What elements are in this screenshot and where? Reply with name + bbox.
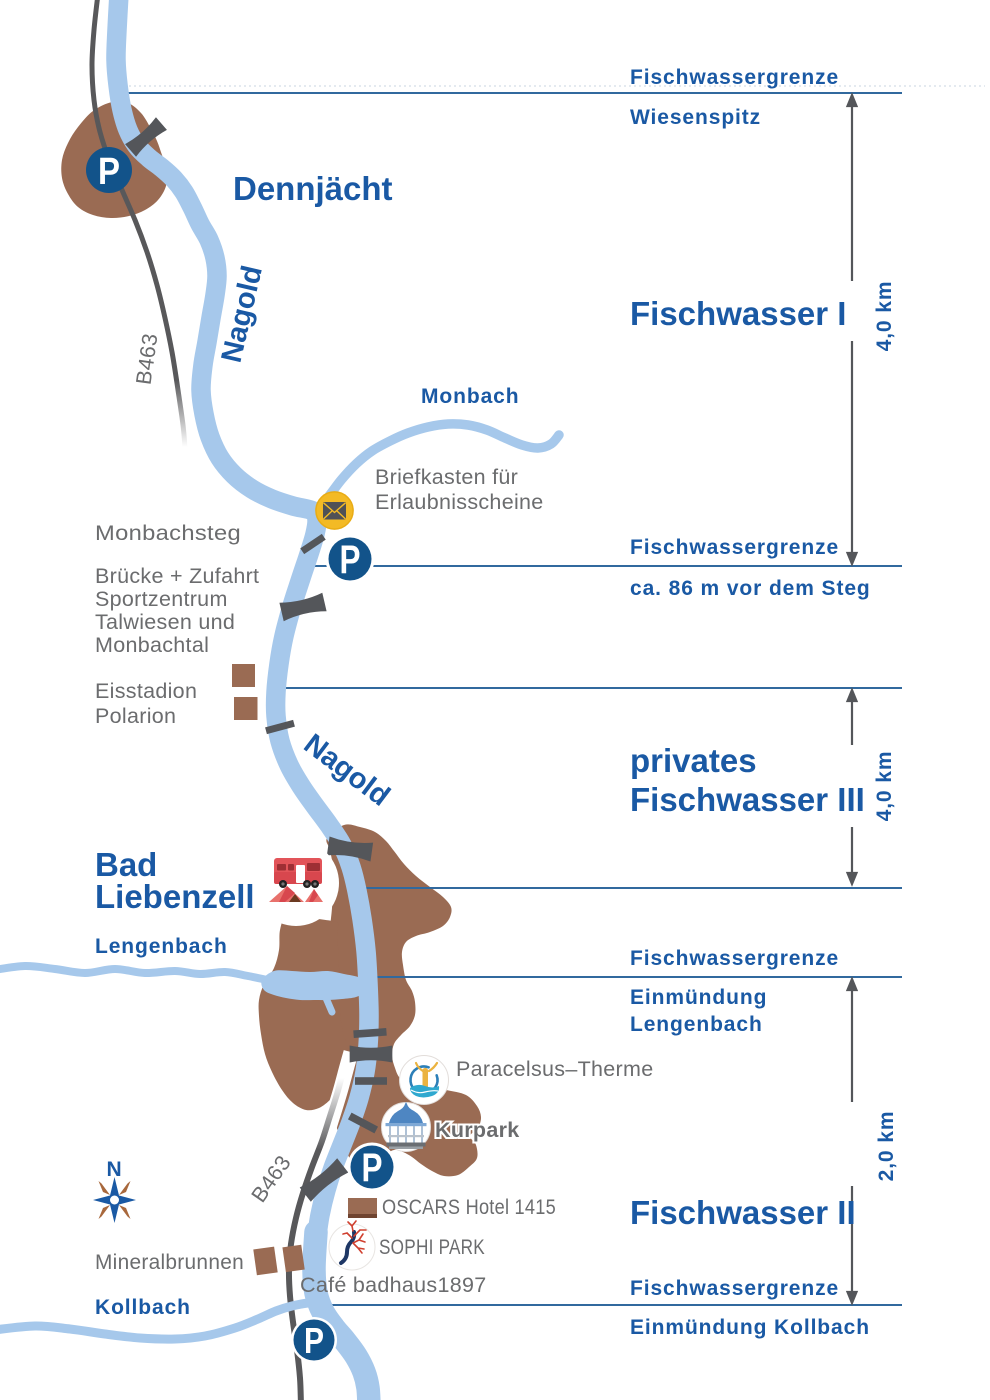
svg-text:Kurpark: Kurpark: [435, 1118, 520, 1142]
svg-text:Lengenbach: Lengenbach: [95, 935, 228, 958]
svg-text:Kollbach: Kollbach: [95, 1296, 191, 1319]
svg-text:Wiesenspitz: Wiesenspitz: [630, 106, 761, 129]
svg-text:Lengenbach: Lengenbach: [630, 1013, 763, 1036]
svg-text:Dennjächt: Dennjächt: [233, 170, 393, 207]
svg-text:Einmündung: Einmündung: [630, 986, 767, 1009]
svg-text:Monbach: Monbach: [421, 385, 519, 408]
svg-text:Café badhaus1897: Café badhaus1897: [300, 1273, 487, 1297]
svg-text:Erlaubnisscheine: Erlaubnisscheine: [375, 490, 544, 514]
svg-text:Monbachtal: Monbachtal: [95, 633, 209, 657]
svg-text:Paracelsus–Therme: Paracelsus–Therme: [456, 1057, 654, 1081]
svg-text:4,0 km: 4,0 km: [873, 281, 896, 352]
svg-text:Briefkasten für: Briefkasten für: [375, 465, 518, 489]
svg-text:4,0 km: 4,0 km: [873, 751, 896, 822]
svg-text:Brücke + Zufahrt: Brücke + Zufahrt: [95, 564, 259, 588]
svg-text:SOPHI PARK: SOPHI PARK: [379, 1235, 485, 1259]
svg-text:ca. 86 m vor dem Steg: ca. 86 m vor dem Steg: [630, 577, 871, 600]
svg-text:P: P: [340, 538, 361, 582]
svg-text:P: P: [304, 1320, 324, 1361]
svg-text:Fischwasser I: Fischwasser I: [630, 295, 846, 332]
svg-text:Talwiesen und: Talwiesen und: [95, 610, 235, 634]
svg-text:Sportzentrum: Sportzentrum: [95, 587, 228, 611]
svg-text:Fischwassergrenze: Fischwassergrenze: [630, 66, 839, 89]
svg-text:Eisstadion: Eisstadion: [95, 679, 197, 703]
svg-text:Fischwassergrenze: Fischwassergrenze: [630, 1277, 839, 1300]
svg-text:P: P: [98, 151, 120, 193]
svg-text:Polarion: Polarion: [95, 704, 176, 728]
svg-text:Liebenzell: Liebenzell: [95, 878, 255, 915]
svg-text:Monbachsteg: Monbachsteg: [95, 521, 241, 545]
svg-text:P: P: [362, 1146, 383, 1190]
svg-text:Fischwasser III: Fischwasser III: [630, 781, 865, 818]
svg-text:2,0 km: 2,0 km: [875, 1111, 898, 1182]
svg-text:Fischwasser II: Fischwasser II: [630, 1194, 856, 1231]
svg-text:OSCARS Hotel 1415: OSCARS Hotel 1415: [382, 1195, 556, 1219]
svg-text:Einmündung Kollbach: Einmündung Kollbach: [630, 1316, 870, 1339]
svg-text:Mineralbrunnen: Mineralbrunnen: [95, 1250, 244, 1274]
svg-text:privates: privates: [630, 742, 757, 779]
svg-text:N: N: [106, 1158, 122, 1181]
svg-text:Fischwassergrenze: Fischwassergrenze: [630, 947, 839, 970]
svg-text:Fischwassergrenze: Fischwassergrenze: [630, 536, 839, 559]
